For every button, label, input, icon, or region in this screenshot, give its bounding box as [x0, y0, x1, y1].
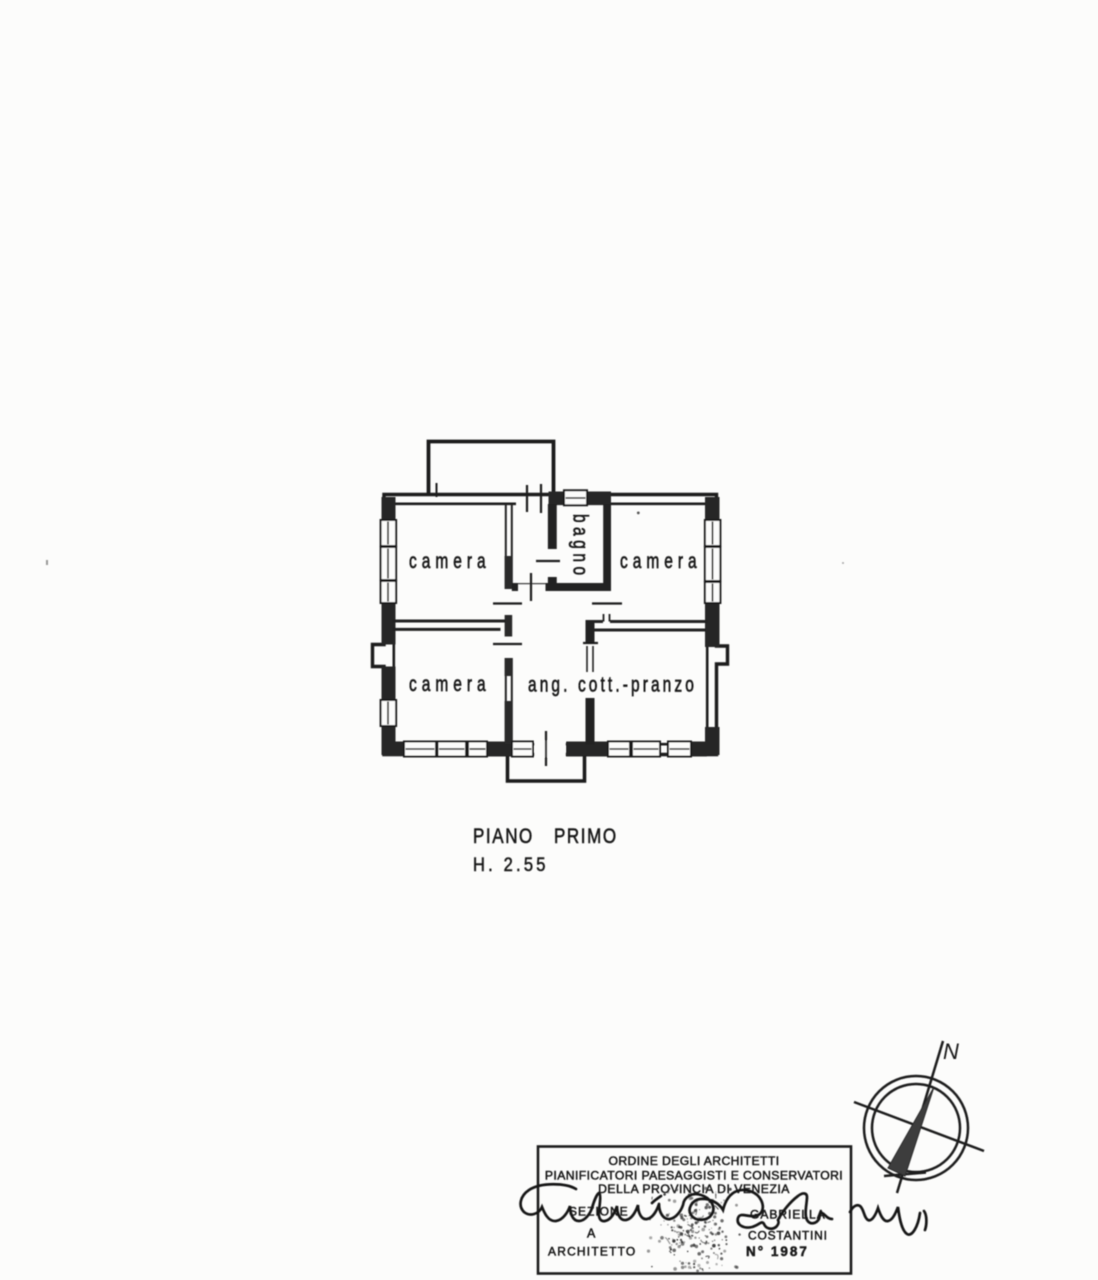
svg-text:bagno: bagno [569, 514, 593, 580]
svg-text:H. 2.55: H. 2.55 [473, 854, 549, 876]
svg-text:ang. cott.-pranzo: ang. cott.-pranzo [528, 672, 697, 696]
svg-text:A: A [587, 1227, 596, 1241]
svg-text:PRIMO: PRIMO [554, 825, 618, 848]
svg-text:PIANIFICATORI PAESAGGISTI E C: PIANIFICATORI PAESAGGISTI E CONSERVATORI [545, 1169, 843, 1183]
svg-text:N° 1987: N° 1987 [746, 1244, 809, 1259]
svg-text:COSTANTINI: COSTANTINI [748, 1229, 828, 1243]
svg-text:N: N [943, 1039, 959, 1064]
svg-text:camera: camera [620, 548, 702, 572]
svg-text:camera: camera [409, 548, 491, 572]
svg-text:PIANO: PIANO [473, 825, 534, 848]
svg-text:ORDINE DEGLI ARCHITETTI: ORDINE DEGLI ARCHITETTI [608, 1154, 779, 1168]
svg-text:ARCHITETTO: ARCHITETTO [548, 1245, 636, 1259]
svg-text:camera: camera [409, 671, 491, 695]
